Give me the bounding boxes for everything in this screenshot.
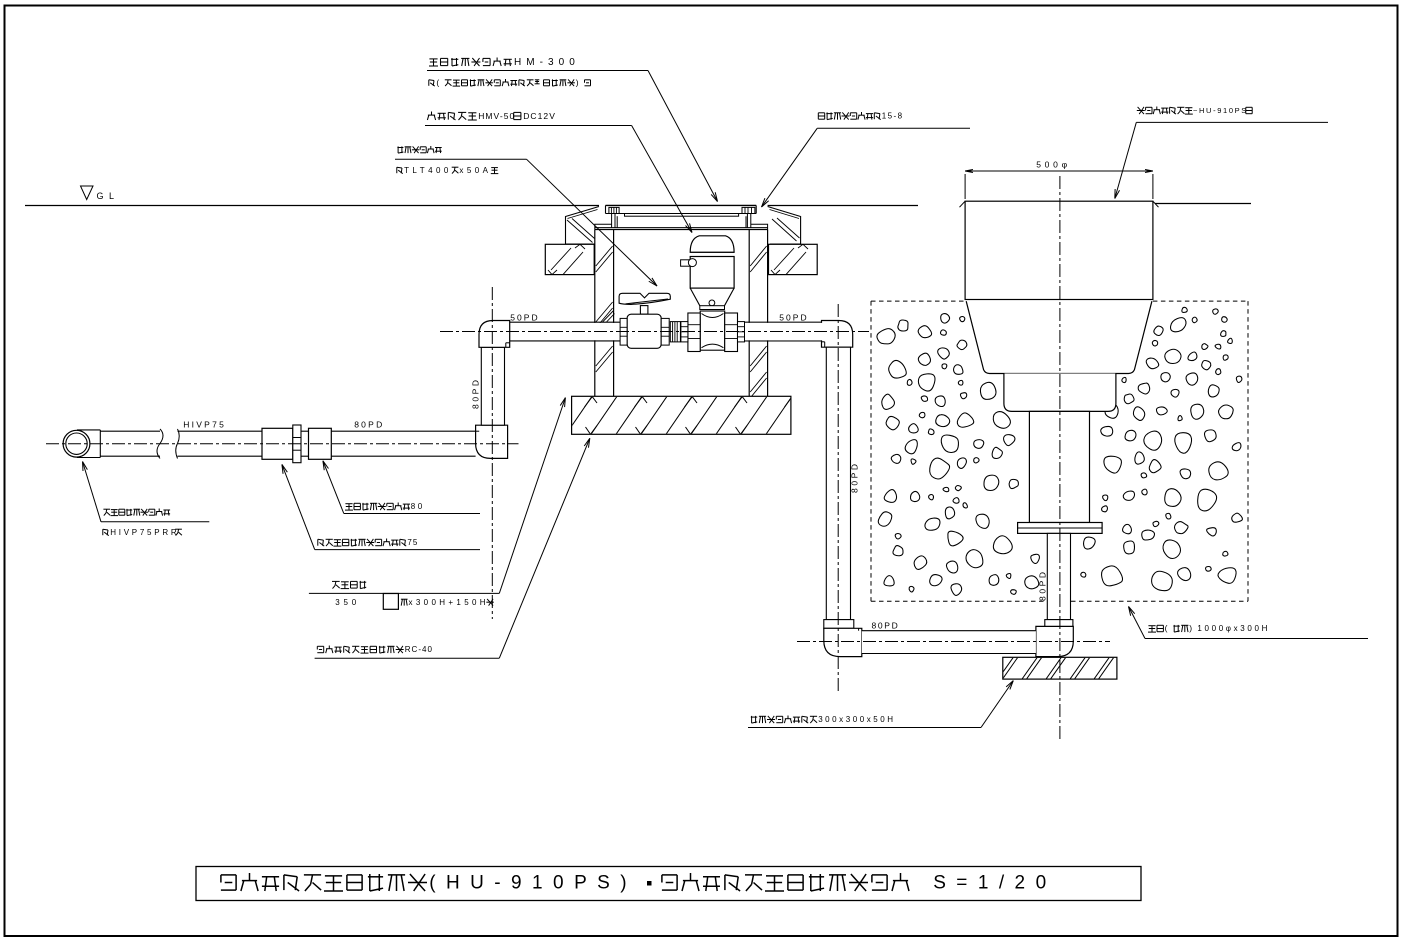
svg-text:): ) — [576, 77, 582, 87]
svg-text:GL: GL — [97, 191, 120, 201]
svg-text:80: 80 — [411, 502, 425, 511]
svg-text:350: 350 — [335, 598, 360, 607]
svg-text:S=1/20: S=1/20 — [933, 873, 1056, 894]
svg-text:RC-40: RC-40 — [405, 645, 433, 654]
svg-text:): ) — [1189, 623, 1195, 633]
svg-text:x300H+150H: x300H+150H — [409, 598, 489, 607]
svg-text:TLT400: TLT400 — [404, 166, 452, 175]
svg-text:(HU-910PS): (HU-910PS) — [429, 873, 637, 894]
svg-text:80PD: 80PD — [1038, 569, 1048, 601]
svg-text:80PD: 80PD — [850, 461, 860, 493]
svg-text:75: 75 — [407, 538, 418, 547]
svg-text:15-8: 15-8 — [882, 111, 904, 120]
svg-text:~HU-910PS: ~HU-910PS — [1193, 106, 1248, 115]
svg-text:80PD: 80PD — [354, 419, 384, 429]
svg-text:500φ: 500φ — [1036, 159, 1071, 169]
svg-text:80PD: 80PD — [471, 377, 481, 409]
svg-text:x50A: x50A — [459, 166, 491, 175]
svg-text:HIVP75PRR: HIVP75PRR — [110, 528, 179, 537]
svg-text:80PD: 80PD — [872, 620, 900, 630]
svg-text:(: ( — [1165, 623, 1171, 633]
svg-text:HIVP75: HIVP75 — [183, 419, 226, 429]
svg-text:HMV-50: HMV-50 — [478, 111, 515, 121]
svg-text:DC12V: DC12V — [523, 111, 556, 121]
svg-text:300x300x50H: 300x300x50H — [818, 715, 895, 724]
svg-text:HM-300: HM-300 — [514, 57, 580, 68]
svg-text:1000φx300H: 1000φx300H — [1197, 624, 1270, 633]
svg-text:50PD: 50PD — [510, 312, 540, 322]
svg-text:50PD: 50PD — [779, 312, 809, 322]
svg-text:(: ( — [436, 77, 442, 87]
